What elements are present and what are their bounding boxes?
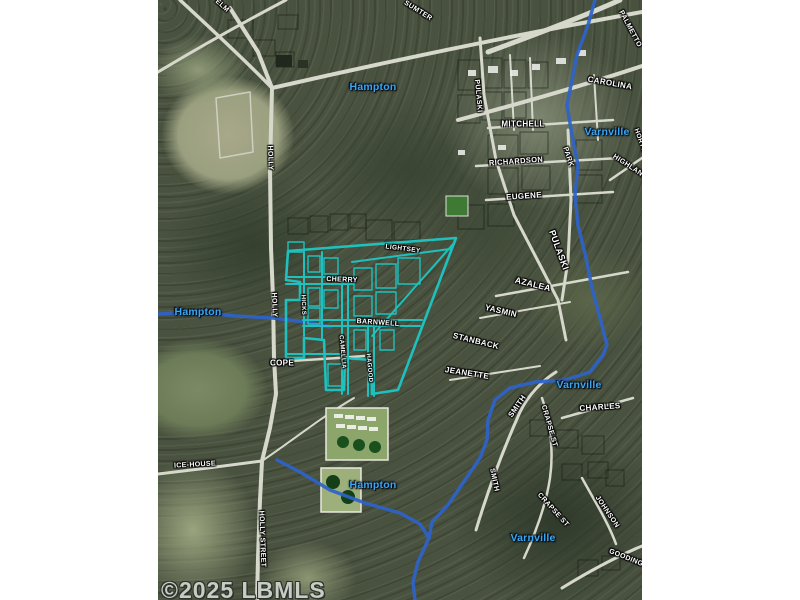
street-label: CHARLES [579,401,621,413]
street-label: YASMIN [484,303,518,319]
street-label: CAROLINA [587,75,633,92]
street-label: STANBACK [452,331,500,351]
town-label: Varnville [511,532,556,544]
street-label: CHERRY [326,276,358,284]
watermark: ©2025 LBMLS [161,577,326,600]
street-label: CAMELLIA [338,335,347,369]
street-label: PALMETTO [617,9,642,48]
street-label: HOLLY [270,292,278,317]
street-label: HORTON [633,128,642,159]
street-label: ELM [214,0,230,14]
street-label: ICE-HOUSE [174,460,216,469]
street-label: PULASKI [547,229,571,272]
street-label: PARK [561,146,574,168]
street-label: BARNWELL [356,318,399,328]
aerial-map-image: HamptonVarnvilleHamptonVarnvilleHamptonV… [158,0,642,600]
street-label: HOLLY [266,145,274,170]
town-label: Varnville [585,126,630,138]
town-label: Hampton [350,479,397,491]
town-label: Hampton [350,81,397,93]
street-label: HIGHLAND [611,153,642,181]
page: { "canvas": {"width": 800, "height": 600… [0,0,800,600]
street-label: SMITH [488,468,500,492]
street-label: PULASKI [473,79,483,113]
town-label: Hampton [175,306,222,318]
street-label: GOODING [608,548,642,568]
street-label: SMITH [506,393,528,419]
street-label: HOLLY STREET [258,511,267,568]
map-labels-layer: HamptonVarnvilleHamptonVarnvilleHamptonV… [158,0,642,600]
town-label: Varnville [557,379,602,391]
street-label: CRAPSE ST [540,404,559,447]
street-label: HAGOOD [365,353,374,383]
street-label: SUMTER [403,0,434,22]
street-label: LIGHTSEY [385,243,421,254]
street-label: JEANETTE [444,365,489,381]
street-label: RICHARDSON [489,155,544,168]
street-label: MITCHELL [501,120,544,129]
street-label: EUGENE [506,190,542,201]
street-label: COPE [270,359,294,368]
street-label: HICKS [300,295,307,316]
street-label: AZALEA [514,275,552,294]
street-label: CRAPSE ST [536,492,570,529]
street-label: JOHNSON [594,495,621,530]
